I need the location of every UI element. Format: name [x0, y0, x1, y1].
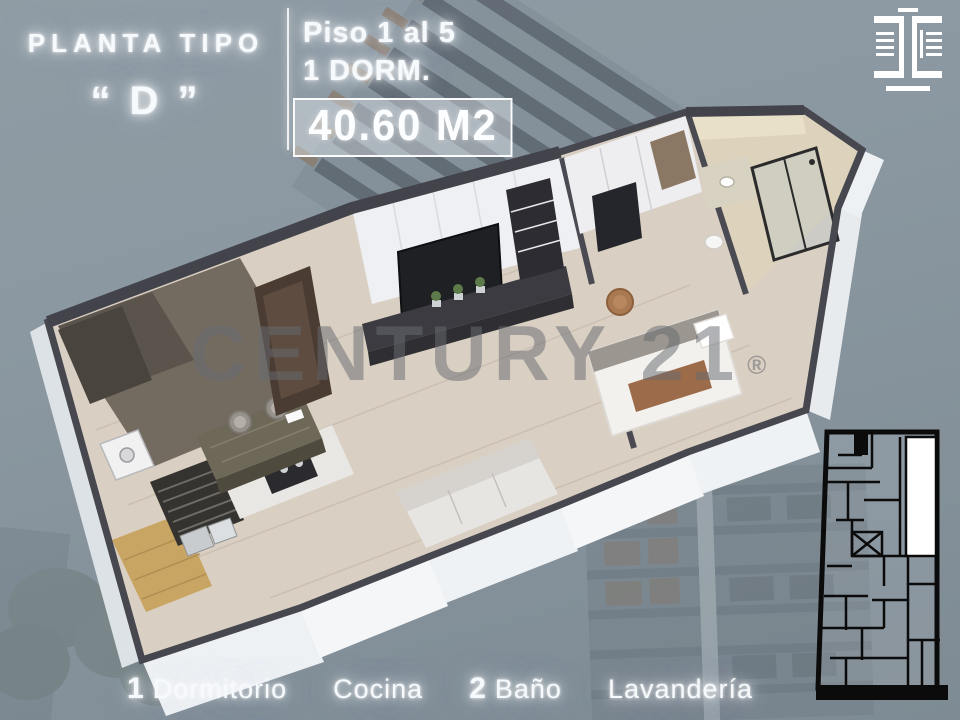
bedrooms-label: 1 DORM. — [303, 52, 524, 90]
building-key-plan — [816, 432, 948, 700]
feature-cocina: Cocina — [333, 674, 423, 705]
feature-label: Cocina — [333, 674, 423, 705]
feature-bano: 2 Baño — [469, 672, 562, 706]
unit-letter: “ D ” — [0, 79, 292, 124]
floors-label: Piso 1 al 5 — [303, 14, 524, 52]
watermark-text: CENTURY 21 — [190, 309, 741, 397]
feature-dormitorio: 1 Dormitorio — [127, 672, 287, 706]
feature-count: 1 — [127, 672, 144, 706]
feature-label: Baño — [495, 674, 562, 705]
page-title: PLANTA TIPO — [0, 28, 292, 59]
century21-watermark: CENTURY 21® — [190, 308, 766, 399]
key-plan-highlighted-unit — [906, 437, 936, 556]
area-badge: 40.60 M2 — [293, 98, 513, 157]
title-block: PLANTA TIPO “ D ” — [0, 28, 292, 124]
registered-mark: ® — [747, 350, 766, 380]
feature-count: 2 — [469, 672, 486, 706]
brand-logo-icon — [868, 8, 948, 99]
feature-label: Dormitorio — [153, 674, 288, 705]
subtitle-block: Piso 1 al 5 1 DORM. 40.60 M2 — [303, 14, 524, 157]
header-divider — [287, 8, 289, 150]
features-caption: 1 Dormitorio Cocina 2 Baño Lavandería — [0, 672, 880, 706]
feature-lavanderia: Lavandería — [608, 674, 753, 705]
feature-label: Lavandería — [608, 674, 753, 705]
marketing-page: CENTURY 21® PLANTA TIPO “ D ” Piso 1 al … — [0, 0, 960, 720]
